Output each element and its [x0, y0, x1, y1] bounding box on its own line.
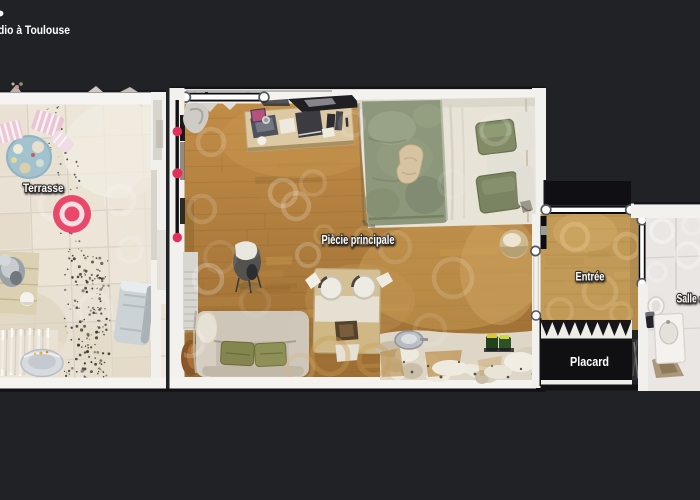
svg-text:Placard: Placard — [570, 355, 609, 369]
svg-text:dio à Toulouse: dio à Toulouse — [0, 25, 70, 37]
svg-text:Salle d: Salle d — [677, 292, 700, 306]
svg-text:Terrasse: Terrasse — [23, 181, 64, 195]
svg-text:Entrée: Entrée — [576, 270, 605, 284]
